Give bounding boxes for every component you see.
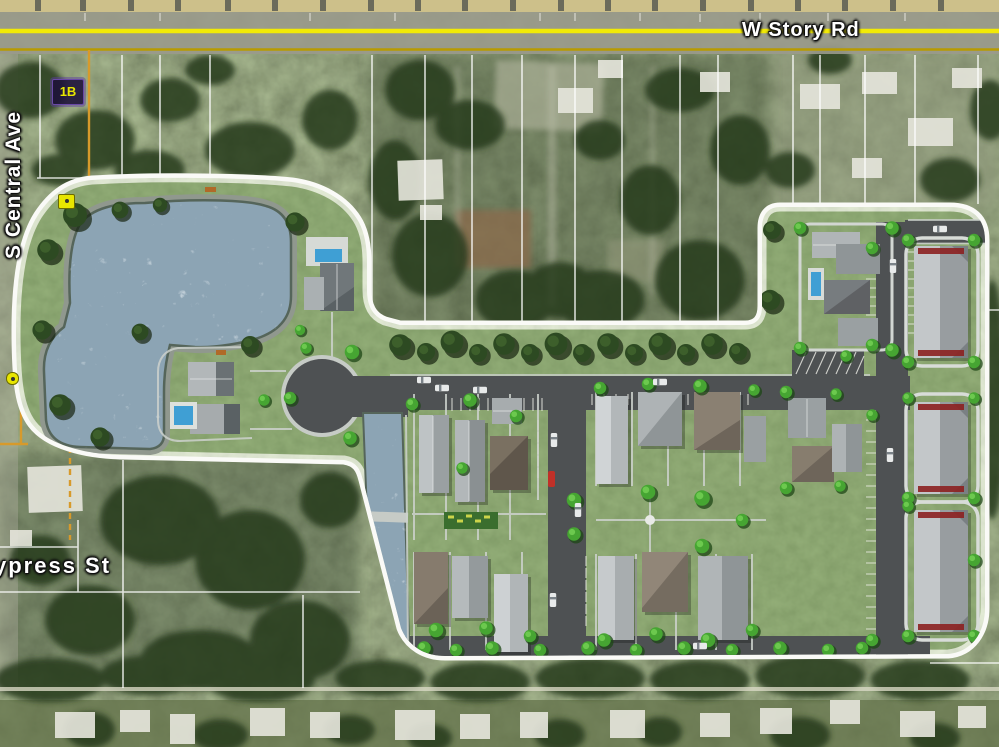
building-banner [918,624,964,630]
aerial-map-canvas[interactable]: W Story Rd S Central Ave ypress St 1B [0,0,999,747]
building-banner [918,486,964,492]
street-label-s-central-ave: S Central Ave [0,60,28,310]
parcel-marker[interactable] [58,194,75,209]
map-graphic [0,0,999,747]
large-building-3 [906,502,978,640]
street-label-cypress-st: ypress St [0,553,111,579]
red-car [548,471,555,487]
bench [205,187,216,192]
parcel-marker[interactable] [6,372,19,385]
middle-road [548,392,586,656]
bench [216,350,226,355]
pool-east [811,272,821,296]
courtyard-feature [645,515,655,525]
large-building-2 [906,394,978,502]
building-banner [918,512,964,518]
south-road [400,636,930,657]
building-banner [918,350,964,356]
building-banner [918,248,964,254]
pool-clubhouse [315,249,342,262]
large-building-1 [906,238,978,366]
building-banner [918,404,964,410]
pool-small [174,406,193,425]
bottom-road-line [0,687,999,691]
parcel-marker-1b[interactable]: 1B [52,79,84,105]
street-label-w-story-rd: W Story Rd [742,19,860,42]
